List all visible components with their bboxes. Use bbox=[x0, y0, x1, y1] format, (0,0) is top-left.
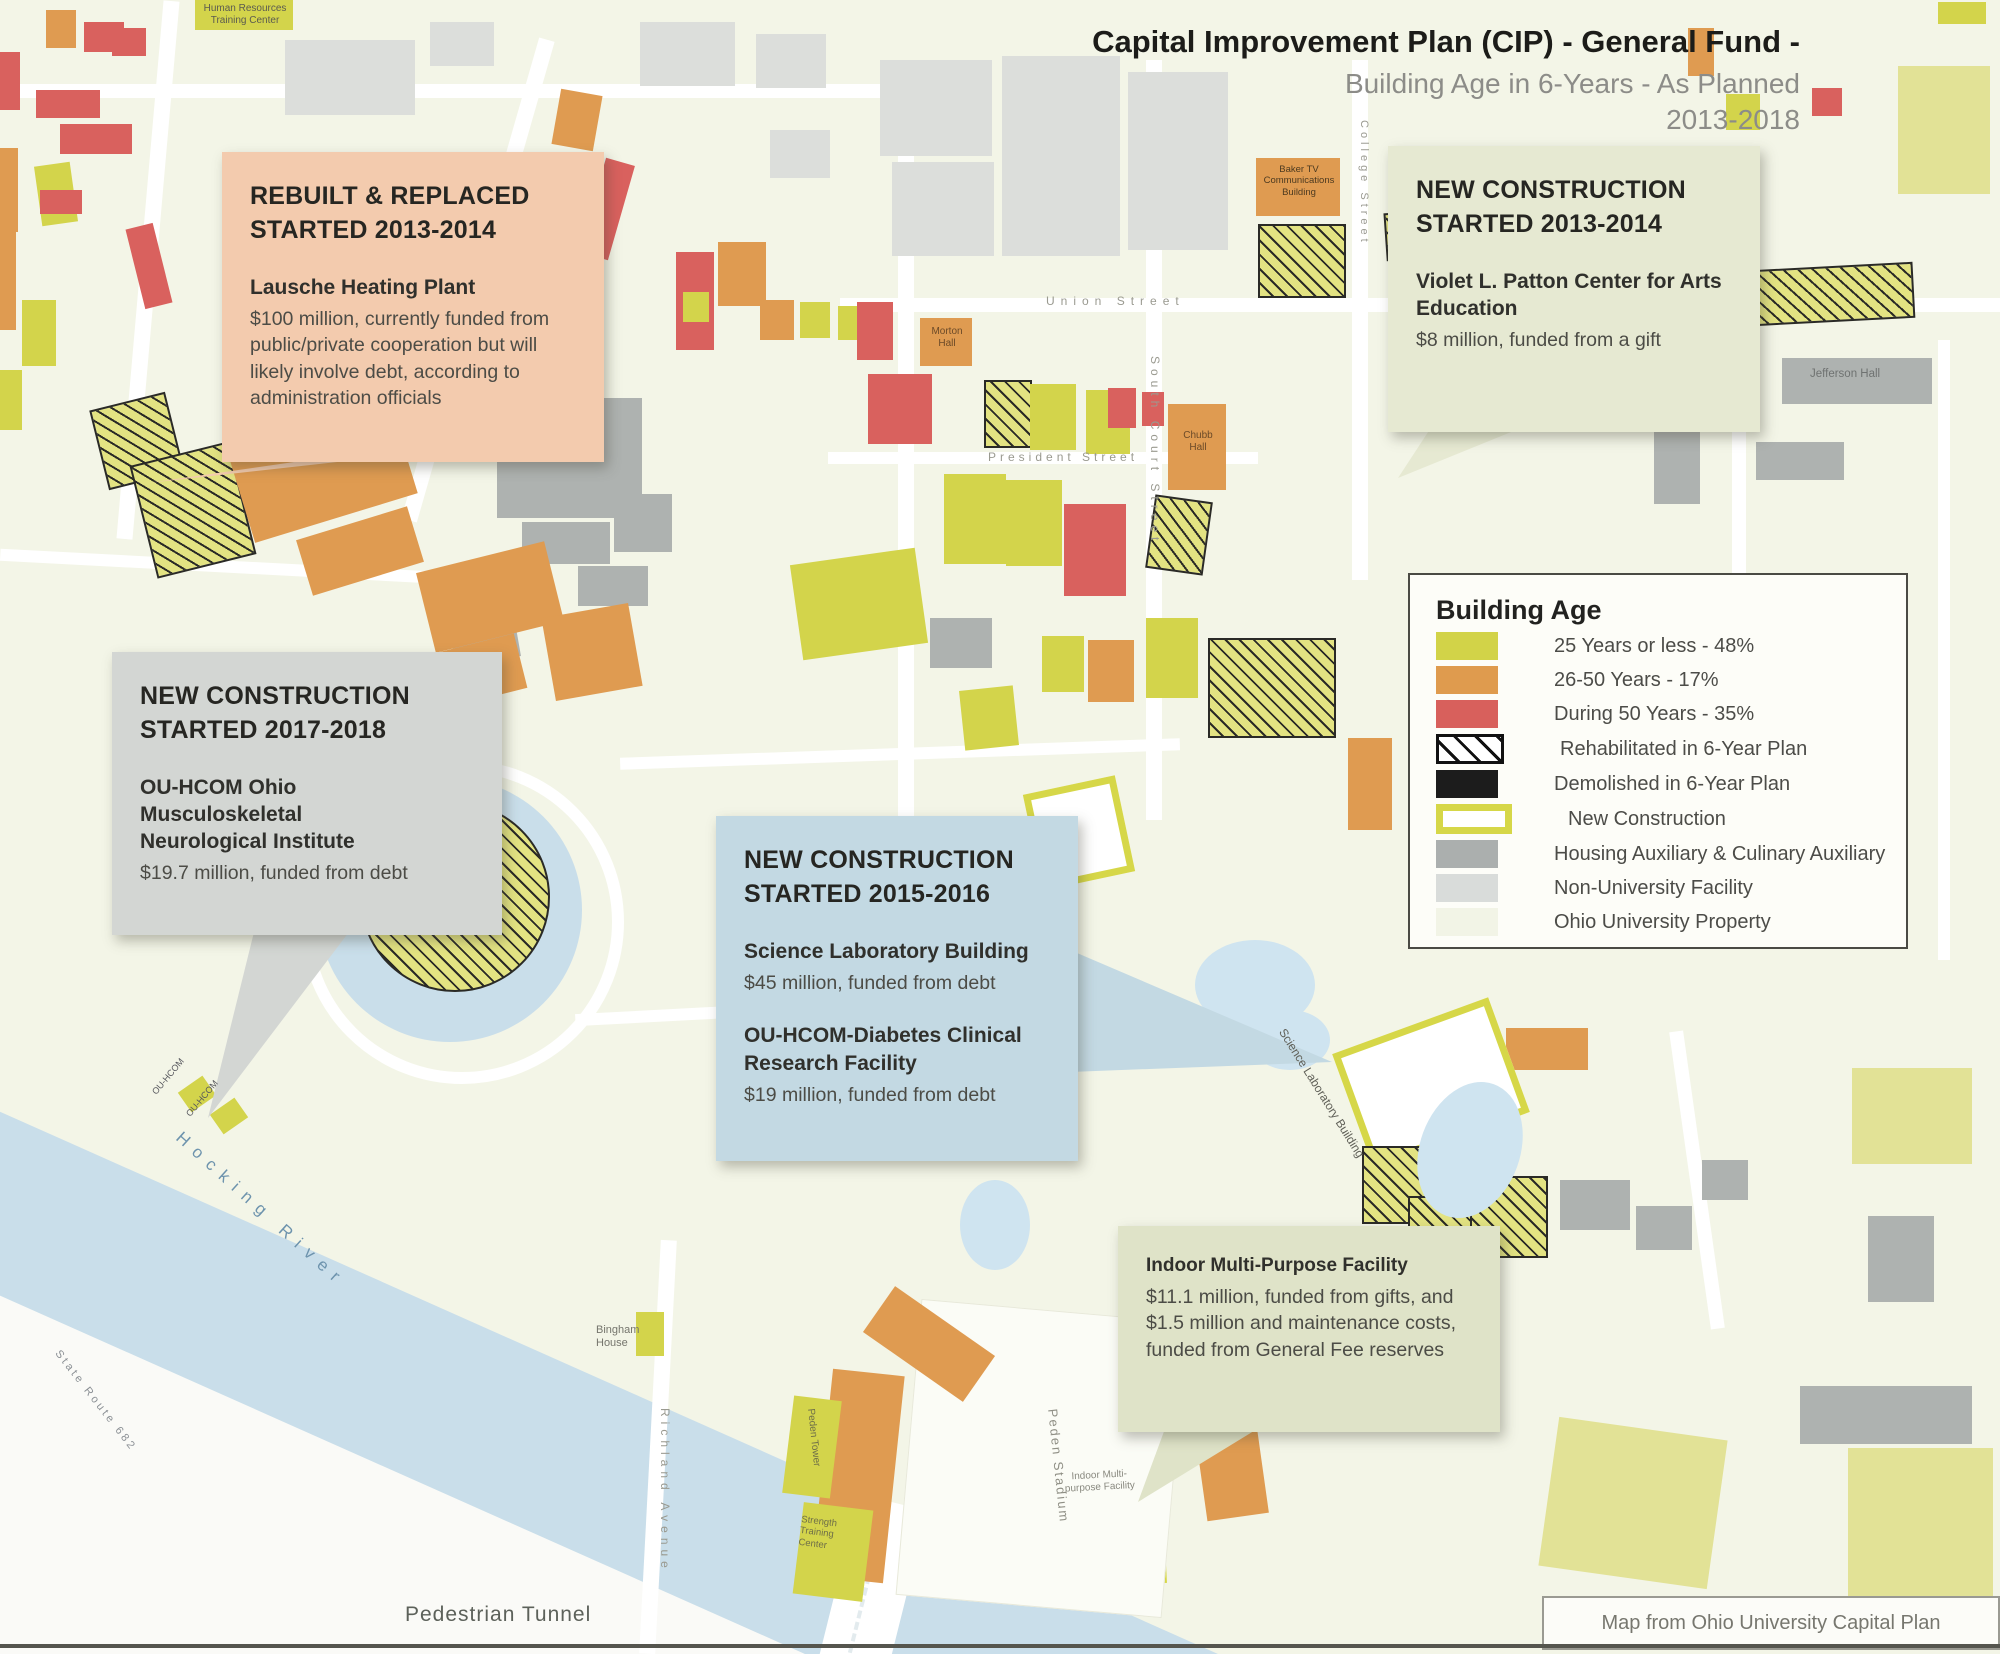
map-label-south-court-street: South Court Street bbox=[1148, 356, 1162, 545]
legend: Building Age 25 Years or less - 48% 26-5… bbox=[1408, 573, 1908, 949]
page-title: Capital Improvement Plan (CIP) - General… bbox=[980, 24, 1800, 60]
legend-label: Rehabilitated in 6-Year Plan bbox=[1560, 738, 1807, 761]
map-label-pedestrian-tunnel: Pedestrian Tunnel bbox=[405, 1602, 591, 1627]
map-label-union-street: Union Street bbox=[1046, 294, 1185, 308]
map-label-hr-training: Human Resources Training Center bbox=[198, 3, 292, 27]
legend-title: Building Age bbox=[1436, 595, 1880, 626]
heading-line-1: NEW CONSTRUCTION bbox=[140, 680, 474, 714]
map-label-baker-tv: Baker TV Communications Building bbox=[1262, 164, 1336, 198]
map-label-bingham-house: Bingham House bbox=[596, 1324, 658, 1350]
callout-rebuilt-replaced: REBUILT & REPLACED STARTED 2013-2014 Lau… bbox=[222, 152, 604, 462]
callout-tail-new2013 bbox=[1398, 426, 1526, 478]
map-canvas: Hocking River Pedestrian Tunnel Peden St… bbox=[0, 0, 2000, 1654]
project-name: Indoor Multi-Purpose Facility bbox=[1146, 1254, 1472, 1279]
map-label-jefferson-hall: Jefferson Hall bbox=[1810, 368, 1880, 382]
legend-swatch-rehabilitated bbox=[1436, 734, 1504, 764]
attribution-text: Map from Ohio University Capital Plan bbox=[1601, 1612, 1940, 1635]
legend-swatch-26-50-years bbox=[1436, 666, 1498, 694]
callout-heading: NEW CONSTRUCTION STARTED 2013-2014 bbox=[1416, 174, 1732, 242]
legend-label: During 50 Years - 35% bbox=[1554, 703, 1754, 726]
project-detail: $8 million, funded from a gift bbox=[1416, 327, 1732, 354]
project-name: OU-HCOM Ohio Musculoskeletal Neurologica… bbox=[140, 774, 392, 856]
attribution-box: Map from Ohio University Capital Plan bbox=[1542, 1596, 2000, 1650]
map-bottom-border bbox=[0, 1644, 2000, 1648]
callout-new-construction-2013: NEW CONSTRUCTION STARTED 2013-2014 Viole… bbox=[1388, 146, 1760, 432]
callout-indoor-facility: Indoor Multi-Purpose Facility $11.1 mill… bbox=[1118, 1226, 1500, 1432]
heading-line-1: NEW CONSTRUCTION bbox=[744, 844, 1050, 878]
legend-row: Demolished in 6-Year Plan bbox=[1436, 770, 1880, 798]
legend-label: New Construction bbox=[1568, 808, 1726, 831]
title-block: Capital Improvement Plan (CIP) - General… bbox=[980, 24, 1800, 136]
legend-label: Ohio University Property bbox=[1554, 911, 1771, 934]
legend-swatch-housing-auxiliary bbox=[1436, 840, 1498, 868]
project-detail: $45 million, funded from debt bbox=[744, 970, 1050, 997]
project-name: Violet L. Patton Center for Arts Educati… bbox=[1416, 268, 1732, 323]
legend-row: Rehabilitated in 6-Year Plan bbox=[1436, 734, 1880, 764]
heading-line-2: STARTED 2015-2016 bbox=[744, 878, 1050, 912]
map-label-chubb-hall: Chubb Hall bbox=[1176, 430, 1220, 454]
legend-row: 25 Years or less - 48% bbox=[1436, 632, 1880, 660]
project-detail: $11.1 million, funded from gifts, and $1… bbox=[1146, 1284, 1472, 1364]
legend-label: Demolished in 6-Year Plan bbox=[1554, 773, 1790, 796]
legend-swatch-25-years bbox=[1436, 632, 1498, 660]
legend-swatch-university-property bbox=[1436, 908, 1498, 936]
legend-swatch-non-university bbox=[1436, 874, 1498, 902]
callout-new-construction-2017: NEW CONSTRUCTION STARTED 2017-2018 OU-HC… bbox=[112, 652, 502, 935]
project-detail: $100 million, currently funded from publ… bbox=[250, 306, 576, 412]
heading-line-2: STARTED 2013-2014 bbox=[250, 214, 576, 248]
callout-tail-new2017 bbox=[208, 928, 352, 1118]
legend-label: 26-50 Years - 17% bbox=[1554, 669, 1719, 692]
legend-row: Housing Auxiliary & Culinary Auxiliary bbox=[1436, 840, 1880, 868]
legend-label: 25 Years or less - 48% bbox=[1554, 635, 1754, 658]
callout-new-construction-2015: NEW CONSTRUCTION STARTED 2015-2016 Scien… bbox=[716, 816, 1078, 1161]
heading-line-2: STARTED 2017-2018 bbox=[140, 714, 474, 748]
page-subtitle: Building Age in 6-Years - As Planned bbox=[980, 68, 1800, 100]
legend-label: Housing Auxiliary & Culinary Auxiliary bbox=[1554, 843, 1885, 866]
project-name: Science Laboratory Building bbox=[744, 938, 1050, 965]
map-label-college-street: College Street bbox=[1357, 120, 1370, 246]
callout-heading: NEW CONSTRUCTION STARTED 2017-2018 bbox=[140, 680, 474, 748]
legend-swatch-during-50-years bbox=[1436, 700, 1498, 728]
legend-row: During 50 Years - 35% bbox=[1436, 700, 1880, 728]
legend-row: Non-University Facility bbox=[1436, 874, 1880, 902]
map-label-indoor-facility: Indoor Multi-purpose Facility bbox=[1058, 1468, 1141, 1496]
page-years: 2013-2018 bbox=[980, 104, 1800, 136]
map-label-richland-avenue: Richland Avenue bbox=[658, 1408, 672, 1573]
heading-line-2: STARTED 2013-2014 bbox=[1416, 208, 1732, 242]
legend-row: 26-50 Years - 17% bbox=[1436, 666, 1880, 694]
map-label-morton-hall: Morton Hall bbox=[926, 326, 968, 350]
callout-tail-indoor bbox=[1138, 1426, 1262, 1502]
project-name: OU-HCOM-Diabetes Clinical Research Facil… bbox=[744, 1022, 1044, 1077]
legend-swatch-demolished bbox=[1436, 770, 1498, 798]
legend-label: Non-University Facility bbox=[1554, 877, 1753, 900]
heading-line-1: NEW CONSTRUCTION bbox=[1416, 174, 1732, 208]
legend-swatch-new-construction bbox=[1436, 804, 1512, 834]
heading-line-1: REBUILT & REPLACED bbox=[250, 180, 576, 214]
project-detail: $19 million, funded from debt bbox=[744, 1082, 1050, 1109]
callout-heading: NEW CONSTRUCTION STARTED 2015-2016 bbox=[744, 844, 1050, 912]
project-name: Lausche Heating Plant bbox=[250, 274, 576, 301]
legend-row: New Construction bbox=[1436, 804, 1880, 834]
map-label-president-street: President Street bbox=[988, 450, 1138, 464]
project-detail: $19.7 million, funded from debt bbox=[140, 860, 474, 887]
callout-heading: REBUILT & REPLACED STARTED 2013-2014 bbox=[250, 180, 576, 248]
legend-row: Ohio University Property bbox=[1436, 908, 1880, 936]
